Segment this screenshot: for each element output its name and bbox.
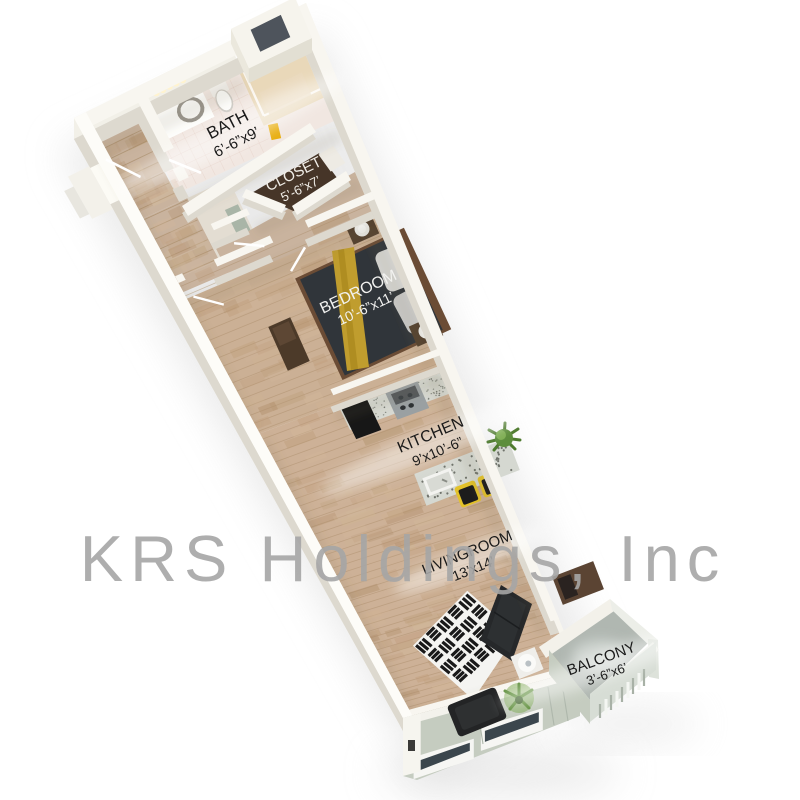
svg-text:KRS Holdings, Inc: KRS Holdings, Inc: [80, 522, 726, 595]
